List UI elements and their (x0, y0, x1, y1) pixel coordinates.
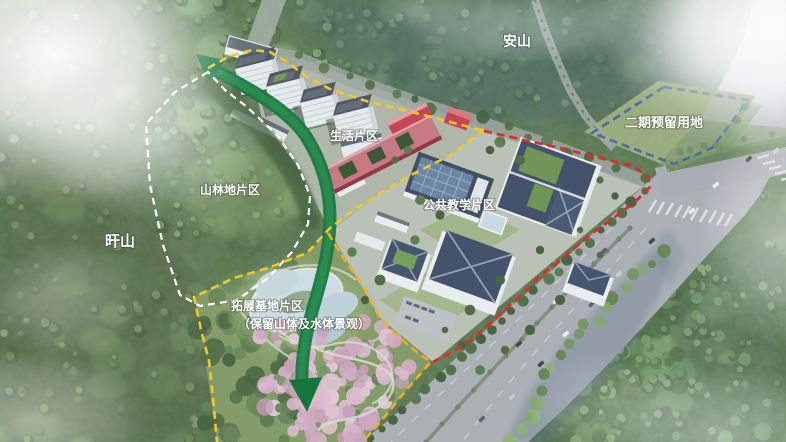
svg-text:（保留山体及水体景观）: （保留山体及水体景观） (238, 316, 370, 331)
svg-text:安山: 安山 (503, 33, 531, 49)
svg-text:公共教学片区: 公共教学片区 (423, 197, 495, 212)
svg-text:生活片区: 生活片区 (330, 128, 378, 143)
svg-text:山林地片区: 山林地片区 (200, 182, 260, 197)
svg-text:二期预留用地: 二期预留用地 (625, 115, 703, 130)
svg-text:拓展基地片区: 拓展基地片区 (231, 298, 303, 313)
svg-text:旰山: 旰山 (105, 233, 135, 250)
